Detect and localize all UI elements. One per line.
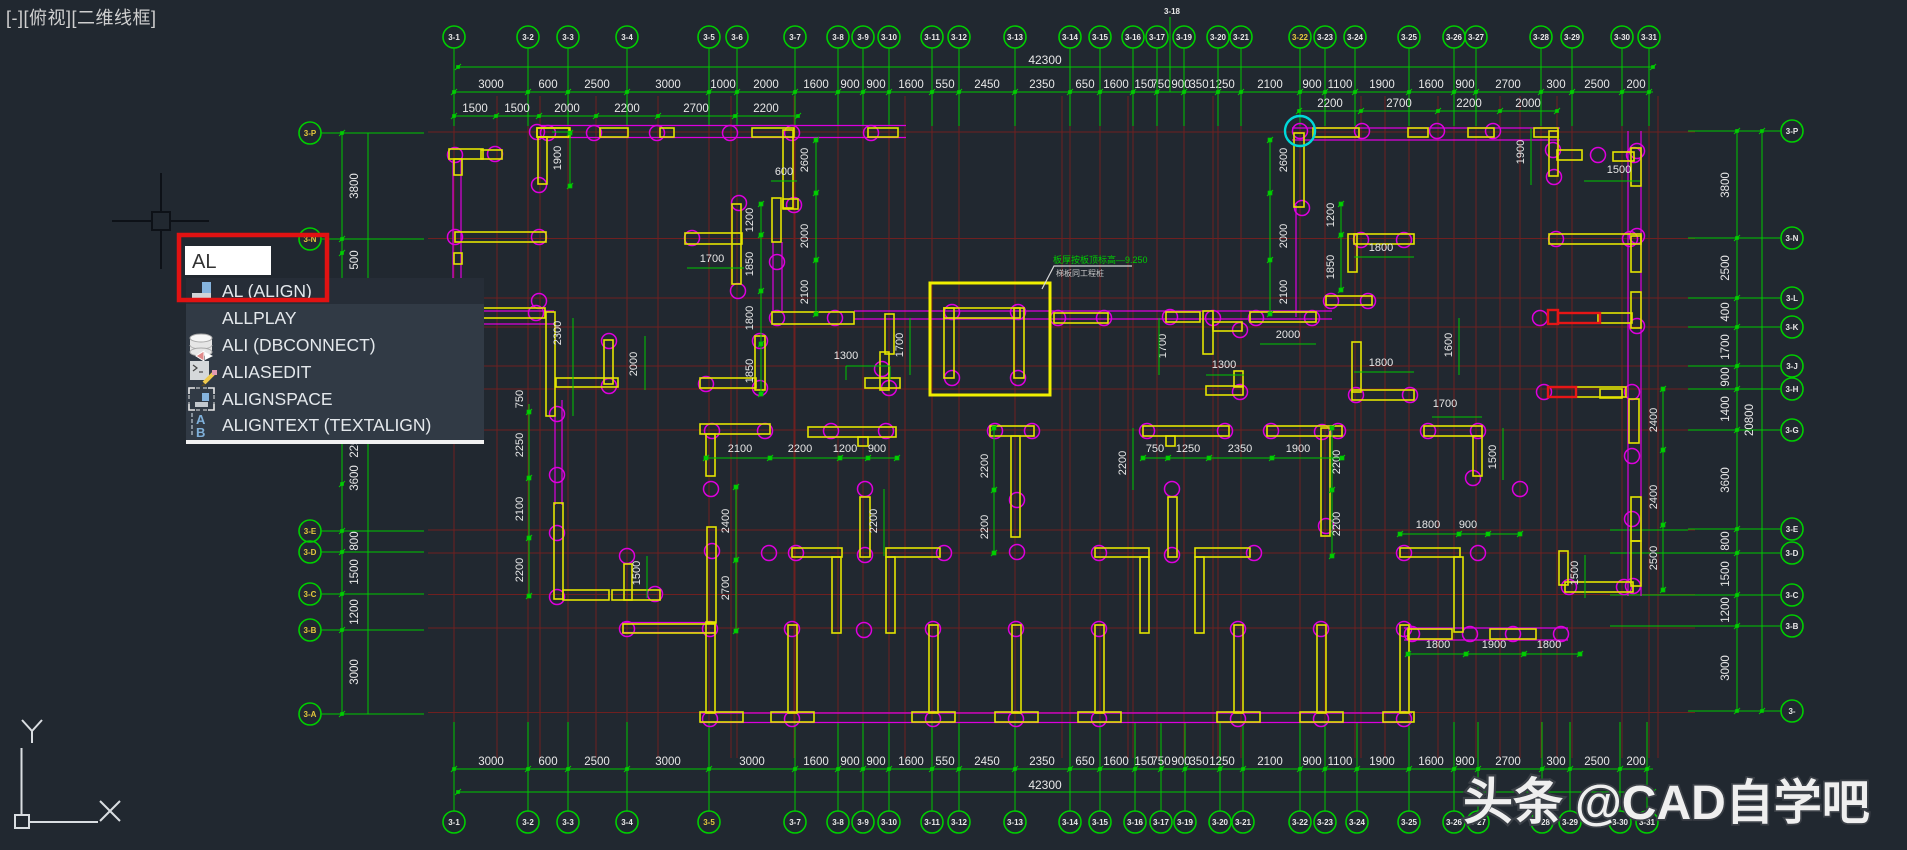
svg-text:2450: 2450	[974, 79, 1000, 91]
svg-text:2200: 2200	[788, 443, 812, 455]
svg-text:2200: 2200	[1117, 451, 1129, 475]
svg-text:350: 350	[1189, 79, 1208, 91]
svg-text:1900: 1900	[1369, 756, 1395, 768]
svg-text:2200: 2200	[979, 515, 991, 539]
svg-text:3-H: 3-H	[1786, 385, 1799, 394]
svg-text:42300: 42300	[1028, 778, 1062, 792]
svg-text:900: 900	[866, 79, 885, 91]
svg-text:1500: 1500	[1607, 164, 1631, 176]
svg-text:1800: 1800	[1537, 639, 1561, 651]
svg-text:3-D: 3-D	[1786, 549, 1799, 558]
svg-text:3-1: 3-1	[448, 818, 460, 827]
svg-text:3-28: 3-28	[1533, 33, 1550, 42]
svg-text:2100: 2100	[1257, 756, 1283, 768]
svg-text:3000: 3000	[655, 756, 681, 768]
svg-text:2700: 2700	[683, 103, 709, 115]
svg-text:600: 600	[538, 756, 557, 768]
svg-text:3-15: 3-15	[1092, 33, 1109, 42]
svg-text:ALIASEDIT: ALIASEDIT	[222, 362, 312, 382]
svg-text:2450: 2450	[974, 756, 1000, 768]
svg-text:1500: 1500	[631, 561, 643, 585]
svg-text:3-3: 3-3	[562, 818, 574, 827]
svg-text:3-22: 3-22	[1292, 33, 1309, 42]
svg-text:750: 750	[1151, 756, 1170, 768]
svg-text:1600: 1600	[1103, 756, 1129, 768]
svg-text:2000: 2000	[799, 224, 811, 248]
svg-text:2000: 2000	[554, 103, 580, 115]
svg-text:1200: 1200	[744, 208, 756, 232]
svg-text:1500: 1500	[1720, 561, 1732, 587]
svg-text:750: 750	[1151, 79, 1170, 91]
svg-text:350: 350	[1189, 756, 1208, 768]
svg-text:650: 650	[1075, 756, 1094, 768]
svg-text:3-14: 3-14	[1062, 33, 1079, 42]
svg-text:900: 900	[1302, 756, 1321, 768]
svg-text:2200: 2200	[514, 558, 526, 582]
svg-text:3-25: 3-25	[1401, 818, 1418, 827]
svg-text:2200: 2200	[868, 509, 880, 533]
svg-text:3-21: 3-21	[1235, 818, 1252, 827]
svg-text:3-J: 3-J	[1786, 362, 1798, 371]
svg-text:1250: 1250	[1209, 756, 1235, 768]
svg-text:900: 900	[840, 79, 859, 91]
svg-text:3600: 3600	[1720, 467, 1732, 493]
svg-text:2350: 2350	[1029, 79, 1055, 91]
svg-text:3-13: 3-13	[1007, 818, 1024, 827]
svg-text:1900: 1900	[1482, 639, 1506, 651]
svg-text:900: 900	[1459, 519, 1477, 531]
svg-text:3-18: 3-18	[1164, 7, 1181, 16]
svg-text:3-16: 3-16	[1127, 818, 1144, 827]
svg-text:1600: 1600	[898, 756, 924, 768]
svg-text:1800: 1800	[1416, 519, 1440, 531]
svg-text:900: 900	[1302, 79, 1321, 91]
svg-text:1200: 1200	[1720, 597, 1732, 623]
svg-text:2400: 2400	[1648, 485, 1660, 509]
svg-text:1900: 1900	[1286, 443, 1310, 455]
svg-text:2700: 2700	[1386, 98, 1412, 110]
svg-text:3000: 3000	[1720, 655, 1732, 681]
svg-text:3-G: 3-G	[1785, 426, 1798, 435]
svg-text:3-7: 3-7	[789, 818, 801, 827]
svg-text:2000: 2000	[628, 352, 640, 376]
svg-text:2600: 2600	[1278, 148, 1290, 172]
svg-text:板厚按板顶标高—9.250: 板厚按板顶标高—9.250	[1053, 254, 1148, 265]
svg-text:3-24: 3-24	[1349, 818, 1366, 827]
svg-text:20800: 20800	[1744, 404, 1756, 436]
svg-text:2000: 2000	[753, 79, 779, 91]
svg-text:1100: 1100	[1328, 79, 1353, 91]
svg-text:2100: 2100	[1257, 79, 1283, 91]
svg-text:3-C: 3-C	[304, 590, 317, 599]
svg-text:3-5: 3-5	[703, 33, 715, 42]
svg-text:2100: 2100	[1278, 280, 1290, 304]
svg-text:900: 900	[1171, 79, 1190, 91]
svg-text:2100: 2100	[514, 497, 526, 521]
svg-text:2500: 2500	[1584, 79, 1610, 91]
svg-text:2200: 2200	[1317, 98, 1343, 110]
svg-text:1200: 1200	[1325, 203, 1337, 227]
svg-text:900: 900	[1455, 79, 1474, 91]
svg-text:2500: 2500	[1720, 255, 1732, 281]
svg-text:1600: 1600	[1443, 333, 1455, 357]
svg-text:3-30: 3-30	[1614, 33, 1631, 42]
svg-text:2100: 2100	[728, 443, 752, 455]
svg-text:550: 550	[935, 756, 954, 768]
svg-text:3600: 3600	[349, 465, 361, 491]
svg-text:2400: 2400	[1648, 408, 1660, 432]
svg-text:3-27: 3-27	[1468, 33, 1485, 42]
svg-text:1900: 1900	[1369, 79, 1395, 91]
svg-text:1250: 1250	[1209, 79, 1235, 91]
svg-text:800: 800	[1720, 531, 1732, 550]
svg-text:1200: 1200	[833, 443, 857, 455]
svg-text:3-E: 3-E	[304, 527, 317, 536]
svg-text:3-B: 3-B	[304, 626, 317, 635]
svg-text:3-2: 3-2	[522, 818, 534, 827]
svg-text:3-21: 3-21	[1233, 33, 1250, 42]
svg-text:3-8: 3-8	[832, 33, 844, 42]
svg-text:3000: 3000	[349, 659, 361, 685]
svg-text:900: 900	[840, 756, 859, 768]
svg-text:3-26: 3-26	[1446, 818, 1463, 827]
svg-text:2700: 2700	[1495, 79, 1521, 91]
svg-text:3-19: 3-19	[1176, 33, 1193, 42]
svg-text:3-13: 3-13	[1007, 33, 1024, 42]
svg-text:1850: 1850	[744, 252, 756, 276]
svg-text:3000: 3000	[739, 756, 765, 768]
svg-text:1800: 1800	[1369, 242, 1393, 254]
svg-text:900: 900	[866, 756, 885, 768]
svg-text:3000: 3000	[478, 79, 504, 91]
svg-text:2000: 2000	[1276, 329, 1300, 341]
svg-text:3-D: 3-D	[304, 548, 317, 557]
svg-text:750: 750	[1146, 443, 1164, 455]
svg-text:3-31: 3-31	[1641, 33, 1658, 42]
svg-text:750: 750	[514, 390, 526, 408]
svg-text:2700: 2700	[720, 576, 732, 600]
svg-text:3-L: 3-L	[1786, 294, 1798, 303]
svg-text:3-P: 3-P	[1786, 127, 1799, 136]
svg-text:3-11: 3-11	[924, 818, 940, 827]
svg-text:[-][俯视][二维线框]: [-][俯视][二维线框]	[6, 8, 157, 28]
svg-text:2100: 2100	[799, 280, 811, 304]
svg-text:1100: 1100	[1328, 756, 1353, 768]
svg-text:2000: 2000	[1515, 98, 1541, 110]
svg-text:1300: 1300	[834, 350, 858, 362]
svg-text:3-E: 3-E	[1786, 525, 1799, 534]
svg-text:1800: 1800	[1369, 357, 1393, 369]
svg-text:3-3: 3-3	[562, 33, 574, 42]
svg-text:2600: 2600	[799, 148, 811, 172]
svg-text:B: B	[196, 425, 205, 440]
svg-text:2500: 2500	[1648, 546, 1660, 570]
svg-text:3-16: 3-16	[1125, 33, 1142, 42]
svg-text:1600: 1600	[803, 756, 829, 768]
svg-text:1200: 1200	[349, 599, 361, 625]
svg-text:3-17: 3-17	[1153, 818, 1170, 827]
svg-text:1800: 1800	[1426, 639, 1450, 651]
svg-text:@CAD自学吧: @CAD自学吧	[1575, 777, 1870, 830]
svg-text:3-B: 3-B	[1786, 622, 1799, 631]
svg-text:2200: 2200	[1331, 450, 1343, 474]
svg-text:ALLPLAY: ALLPLAY	[222, 308, 297, 328]
svg-text:1850: 1850	[1325, 255, 1337, 279]
svg-text:ALI (DBCONNECT): ALI (DBCONNECT)	[222, 335, 376, 355]
svg-text:3-14: 3-14	[1062, 818, 1079, 827]
svg-text:1600: 1600	[1418, 79, 1444, 91]
svg-text:3-K: 3-K	[1786, 323, 1799, 332]
svg-text:2700: 2700	[1495, 756, 1521, 768]
svg-text:400: 400	[1720, 302, 1732, 321]
svg-text:3-7: 3-7	[789, 33, 801, 42]
svg-text:2300: 2300	[552, 321, 564, 345]
svg-text:3-11: 3-11	[924, 33, 940, 42]
svg-text:3-N: 3-N	[1786, 234, 1799, 243]
svg-text:1700: 1700	[894, 333, 906, 357]
svg-text:800: 800	[349, 531, 361, 550]
svg-text:900: 900	[1455, 756, 1474, 768]
svg-text:2250: 2250	[514, 433, 526, 457]
svg-text:1900: 1900	[552, 146, 564, 170]
svg-text:2200: 2200	[1331, 512, 1343, 536]
svg-text:1850: 1850	[744, 359, 756, 383]
svg-text:200: 200	[1626, 79, 1645, 91]
svg-text:1600: 1600	[1103, 79, 1129, 91]
svg-text:3-20: 3-20	[1212, 818, 1229, 827]
svg-text:1400: 1400	[1720, 396, 1732, 422]
svg-text:3-20: 3-20	[1210, 33, 1227, 42]
svg-text:2000: 2000	[1278, 224, 1290, 248]
svg-text:1700: 1700	[1720, 334, 1732, 360]
svg-text:3-P: 3-P	[304, 129, 317, 138]
svg-text:300: 300	[1546, 79, 1565, 91]
svg-text:梯板同工程桩: 梯板同工程桩	[1056, 268, 1104, 278]
svg-text:1300: 1300	[1212, 359, 1236, 371]
svg-text:3-C: 3-C	[1786, 591, 1799, 600]
svg-text:42300: 42300	[1028, 53, 1062, 67]
svg-text:1250: 1250	[1176, 443, 1200, 455]
svg-text:1500: 1500	[349, 559, 361, 585]
svg-text:ALIGNTEXT (TEXTALIGN): ALIGNTEXT (TEXTALIGN)	[222, 415, 431, 435]
svg-text:2500: 2500	[584, 79, 610, 91]
svg-text:1000: 1000	[710, 79, 736, 91]
svg-text:3800: 3800	[1720, 172, 1732, 198]
svg-text:900: 900	[868, 443, 886, 455]
svg-text:头条: 头条	[1463, 774, 1563, 830]
svg-text:3-23: 3-23	[1317, 33, 1334, 42]
svg-text:1600: 1600	[1418, 756, 1444, 768]
svg-text:2200: 2200	[979, 454, 991, 478]
svg-text:ALIGNSPACE: ALIGNSPACE	[222, 389, 333, 409]
svg-text:3-24: 3-24	[1347, 33, 1364, 42]
svg-text:3-23: 3-23	[1317, 818, 1334, 827]
svg-text:1500: 1500	[462, 103, 488, 115]
svg-text:2200: 2200	[753, 103, 779, 115]
svg-text:200: 200	[1626, 756, 1645, 768]
svg-text:3-12: 3-12	[951, 33, 968, 42]
svg-text:1500: 1500	[1487, 445, 1499, 469]
svg-text:3-26: 3-26	[1446, 33, 1463, 42]
svg-text:3-1: 3-1	[448, 33, 460, 42]
svg-text:3-12: 3-12	[951, 818, 968, 827]
svg-text:3-25: 3-25	[1401, 33, 1418, 42]
svg-text:3000: 3000	[478, 756, 504, 768]
svg-text:3-29: 3-29	[1564, 33, 1581, 42]
svg-text:3-9: 3-9	[857, 33, 869, 42]
svg-text:3-4: 3-4	[621, 818, 633, 827]
svg-text:1500: 1500	[1569, 561, 1581, 585]
svg-text:AL: AL	[192, 251, 216, 273]
svg-text:1700: 1700	[1433, 398, 1457, 410]
svg-text:3000: 3000	[655, 79, 681, 91]
svg-text:600: 600	[538, 79, 557, 91]
svg-text:2200: 2200	[614, 103, 640, 115]
svg-text:3-10: 3-10	[881, 818, 898, 827]
svg-text:1500: 1500	[504, 103, 530, 115]
svg-text:1600: 1600	[803, 79, 829, 91]
svg-text:1700: 1700	[700, 253, 724, 265]
svg-text:3-6: 3-6	[731, 33, 743, 42]
svg-text:2400: 2400	[720, 509, 732, 533]
svg-text:300: 300	[1546, 756, 1565, 768]
svg-text:3-9: 3-9	[857, 818, 869, 827]
svg-text:1800: 1800	[744, 306, 756, 330]
svg-text:3800: 3800	[349, 173, 361, 199]
svg-text:3-5: 3-5	[703, 818, 715, 827]
svg-text:650: 650	[1075, 79, 1094, 91]
svg-text:3-2: 3-2	[522, 33, 534, 42]
svg-text:2500: 2500	[584, 756, 610, 768]
svg-text:3-15: 3-15	[1092, 818, 1109, 827]
svg-text:2350: 2350	[1228, 443, 1252, 455]
svg-text:2200: 2200	[1456, 98, 1482, 110]
svg-text:3-: 3-	[1788, 707, 1795, 716]
svg-text:2500: 2500	[1584, 756, 1610, 768]
svg-text:900: 900	[1720, 367, 1732, 386]
svg-text:3-8: 3-8	[832, 818, 844, 827]
svg-text:500: 500	[349, 250, 361, 269]
svg-text:1900: 1900	[1515, 140, 1527, 164]
svg-text:550: 550	[935, 79, 954, 91]
svg-text:900: 900	[1171, 756, 1190, 768]
svg-text:3-A: 3-A	[304, 710, 317, 719]
svg-text:1600: 1600	[898, 79, 924, 91]
svg-text:3-10: 3-10	[881, 33, 898, 42]
svg-text:3-4: 3-4	[621, 33, 633, 42]
svg-text:3-22: 3-22	[1292, 818, 1309, 827]
svg-text:3-17: 3-17	[1149, 33, 1166, 42]
svg-text:600: 600	[775, 166, 793, 178]
svg-text:2350: 2350	[1029, 756, 1055, 768]
svg-text:3-19: 3-19	[1177, 818, 1194, 827]
